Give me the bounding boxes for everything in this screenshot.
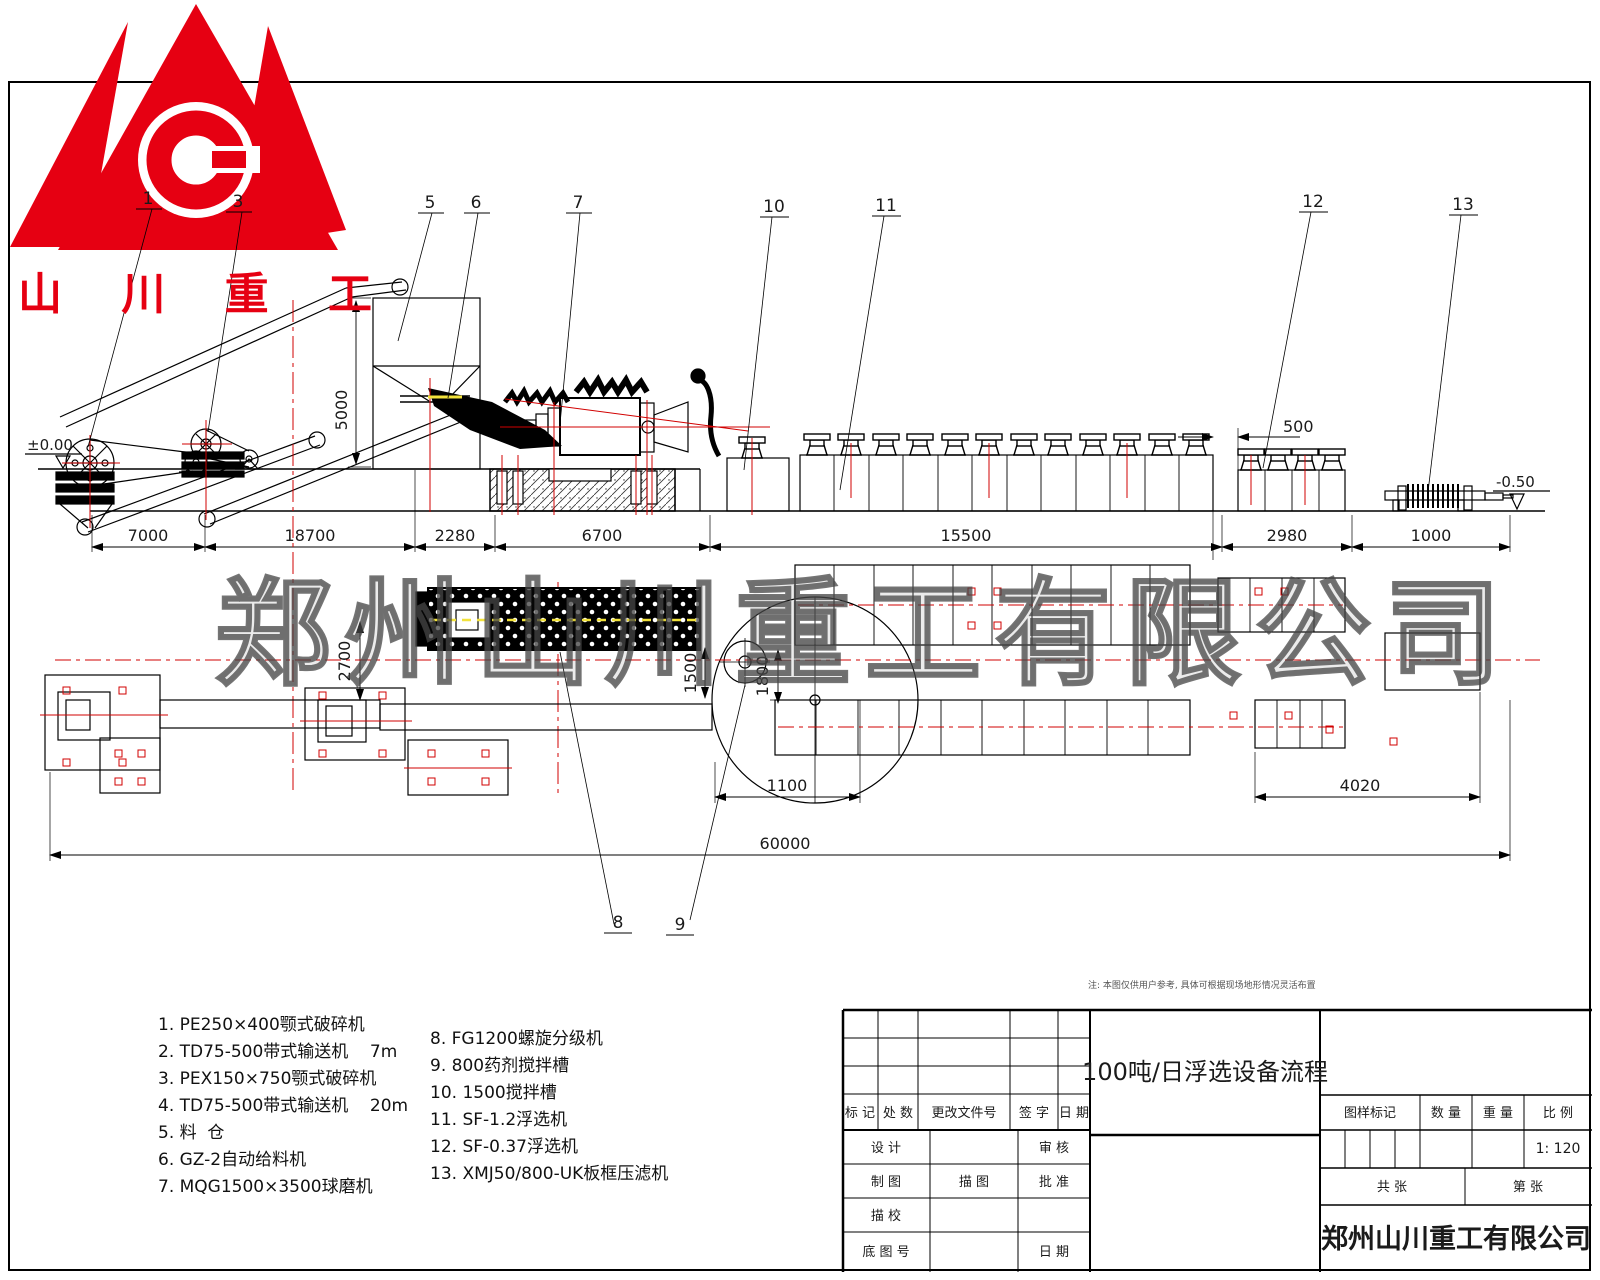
anchor-bolts [63,588,1397,785]
tb-sheet-no: 第 张 [1513,1180,1543,1195]
callout-10: 10 [744,197,789,470]
legend-item-8: 8. FG1200螺旋分级机 [430,1026,668,1053]
company-logo [10,4,346,250]
dim-text-2980: 2980 [1267,526,1308,545]
dim-text-2700: 2700 [335,641,354,682]
tb-draft: 制 图 [871,1175,901,1190]
tb-rev-file: 更改文件号 [931,1106,996,1121]
dim-text-5000: 5000 [332,390,351,431]
svg-text:6: 6 [471,193,482,213]
svg-text:13: 13 [1452,195,1474,215]
crusher1-foundation-plan [45,675,160,770]
legend-right: 8. FG1200螺旋分级机 9. 800药剂搅拌槽 10. 1500搅拌槽 1… [430,1026,668,1188]
tb-sheet-total: 共 张 [1377,1180,1407,1195]
svg-text:1: 1 [143,189,154,209]
filter-press-plan [1385,633,1480,690]
dim-text-4020: 4020 [1340,776,1381,795]
callout-9: 9 [666,915,694,935]
dim-text-15500: 15500 [941,526,992,545]
legend-item-5: 5. 料 仓 [158,1120,408,1147]
dim-text-1000: 1000 [1411,526,1452,545]
reference-note: 注: 本图仅供用户参考, 具体可根据现场地形情况灵活布置 [1088,978,1558,991]
legend-item-3: 3. PEX150×750颚式破碎机 [158,1066,408,1093]
callout-6: 6 [448,193,490,398]
dim-text-2280: 2280 [435,526,476,545]
leader-8 [560,652,614,924]
tb-scale-header: 比 例 [1543,1106,1573,1121]
tb-rev-sign: 签 字 [1019,1105,1049,1121]
flotation-bank-12 [1238,449,1345,511]
svg-text:5: 5 [425,193,436,213]
svg-text:9: 9 [675,915,686,935]
legend-item-7: 7. MQG1500×3500球磨机 [158,1174,408,1201]
logo-c-stub [212,151,246,168]
svg-text:8: 8 [613,913,624,933]
callout-8: 8 [604,913,632,933]
company-name: 郑州山川重工有限公司 [1321,1224,1591,1255]
title-block-text: 标 记 处 数 更改文件号 签 字 日 期 设 计 审 核 制 图 描 图 批 … [845,1058,1591,1260]
plan-view [45,565,1510,924]
agitation-tank-10 [727,437,789,511]
conveyor2-plan [160,700,380,728]
dim-text-7000: 7000 [128,526,169,545]
tb-design: 设 计 [871,1141,901,1156]
head-pulley [392,279,408,295]
discharge-launder [698,380,719,456]
level-text-zero: ±0.00 [27,436,73,454]
tb-rev-date: 日 期 [1059,1106,1089,1121]
legend-item-13: 13. XMJ50/800-UK板框压滤机 [430,1161,668,1188]
svg-text:7: 7 [573,193,584,213]
conveyor4-plan [380,704,712,730]
legend-item-6: 6. GZ-2自动给料机 [158,1147,408,1174]
tb-trace: 描 图 [959,1175,989,1190]
tb-mark-header: 图样标记 [1344,1106,1396,1121]
tb-base-no: 底 图 号 [862,1244,909,1260]
flotation-bank12-bottom-plan [1255,700,1345,748]
dim-text-1800: 1800 [753,656,772,697]
tb-date: 日 期 [1039,1245,1069,1260]
tb-qty-header: 数 量 [1431,1106,1461,1121]
svg-text:12: 12 [1302,192,1324,212]
dim-text-1500: 1500 [681,653,700,694]
svg-text:11: 11 [875,196,897,216]
dim-text-18700: 18700 [285,526,336,545]
pad-plan-b [100,738,160,793]
tb-check: 审 核 [1039,1141,1069,1156]
drawing-page: 7000 18700 2280 6700 15500 2980 1000 500… [0,0,1600,1280]
legend-item-11: 11. SF-1.2浮选机 [430,1107,668,1134]
dim-silo-height [348,298,371,467]
legend-item-4: 4. TD75-500带式输送机 20m [158,1093,408,1120]
dim-text-500: 500 [1283,417,1314,436]
centerlines-elevation [62,300,1305,795]
callout-13: 13 [1428,195,1478,492]
svg-text:3: 3 [233,192,244,212]
leader-9 [690,685,745,920]
tb-rev-mark: 标 记 [845,1106,875,1121]
dim-text-1100: 1100 [767,776,808,795]
tb-approve: 批 准 [1039,1175,1069,1190]
legend-item-10: 10. 1500搅拌槽 [430,1080,668,1107]
logo-wordmark: 山 川 重 工 [18,258,348,322]
legend-item-1: 1. PE250×400颚式破碎机 [158,1012,408,1039]
tb-weight-header: 重 量 [1483,1105,1513,1121]
callout-5: 5 [398,193,444,341]
dim-text-60000: 60000 [760,834,811,853]
legend-item-9: 9. 800药剂搅拌槽 [430,1053,668,1080]
svg-text:10: 10 [763,197,785,217]
legend-item-2: 2. TD75-500带式输送机 7m [158,1039,408,1066]
tb-proof: 描 校 [871,1208,901,1224]
scale-value: 1: 120 [1536,1141,1581,1157]
legend-item-12: 12. SF-0.37浮选机 [430,1134,668,1161]
feeder-6 [400,380,647,449]
spiral-classifier-8 [416,588,700,650]
drawing-title: 100吨/日浮选设备流程 [1082,1058,1328,1086]
dim-text-6700: 6700 [582,526,623,545]
legend-left: 1. PE250×400颚式破碎机 2. TD75-500带式输送机 7m 3.… [158,1012,408,1201]
silo-5 [373,298,480,469]
level-text-minus050: -0.50 [1496,473,1535,491]
tb-rev-count: 处 数 [883,1106,913,1121]
filter-press-13 [1385,484,1513,511]
flotation-bank-11 [800,434,1213,511]
